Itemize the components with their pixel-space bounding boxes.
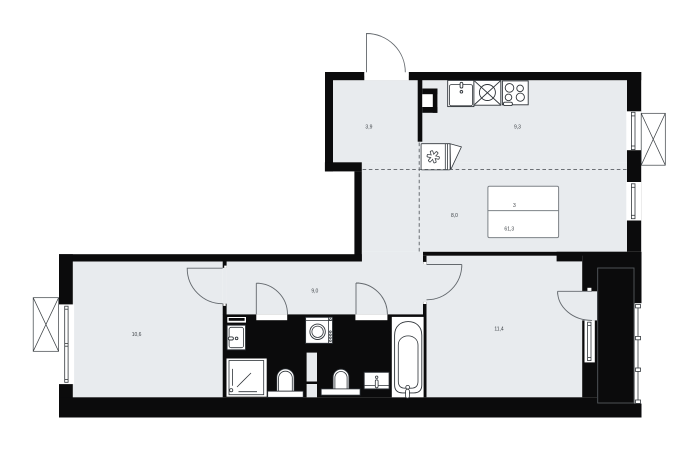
svg-text:3,9: 3,9 [365, 125, 372, 131]
svg-text:61,3: 61,3 [504, 227, 514, 233]
svg-text:10,6: 10,6 [132, 332, 142, 338]
svg-text:8,0: 8,0 [451, 213, 458, 219]
svg-text:11,4: 11,4 [494, 326, 504, 332]
svg-text:9,0: 9,0 [311, 288, 318, 294]
svg-text:9,3: 9,3 [514, 124, 521, 130]
svg-text:3: 3 [513, 203, 516, 209]
